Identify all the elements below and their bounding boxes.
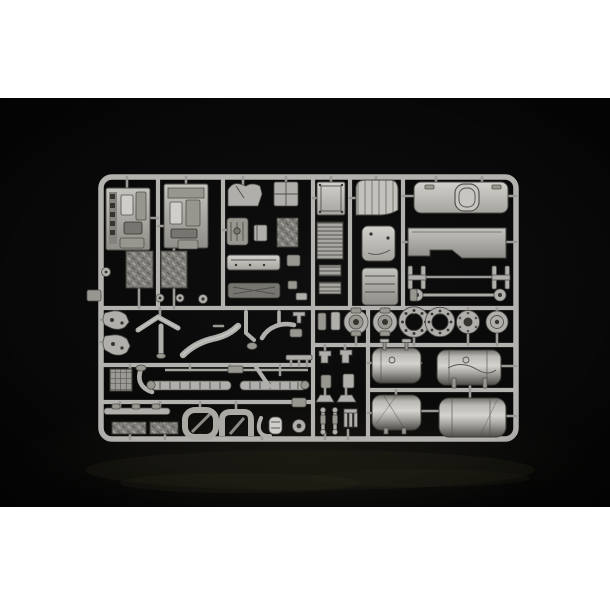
sprue-photo-drawing [0,98,610,507]
photo-vignette [0,98,610,507]
product-photo [0,98,610,507]
screenshot-canvas [0,0,610,610]
